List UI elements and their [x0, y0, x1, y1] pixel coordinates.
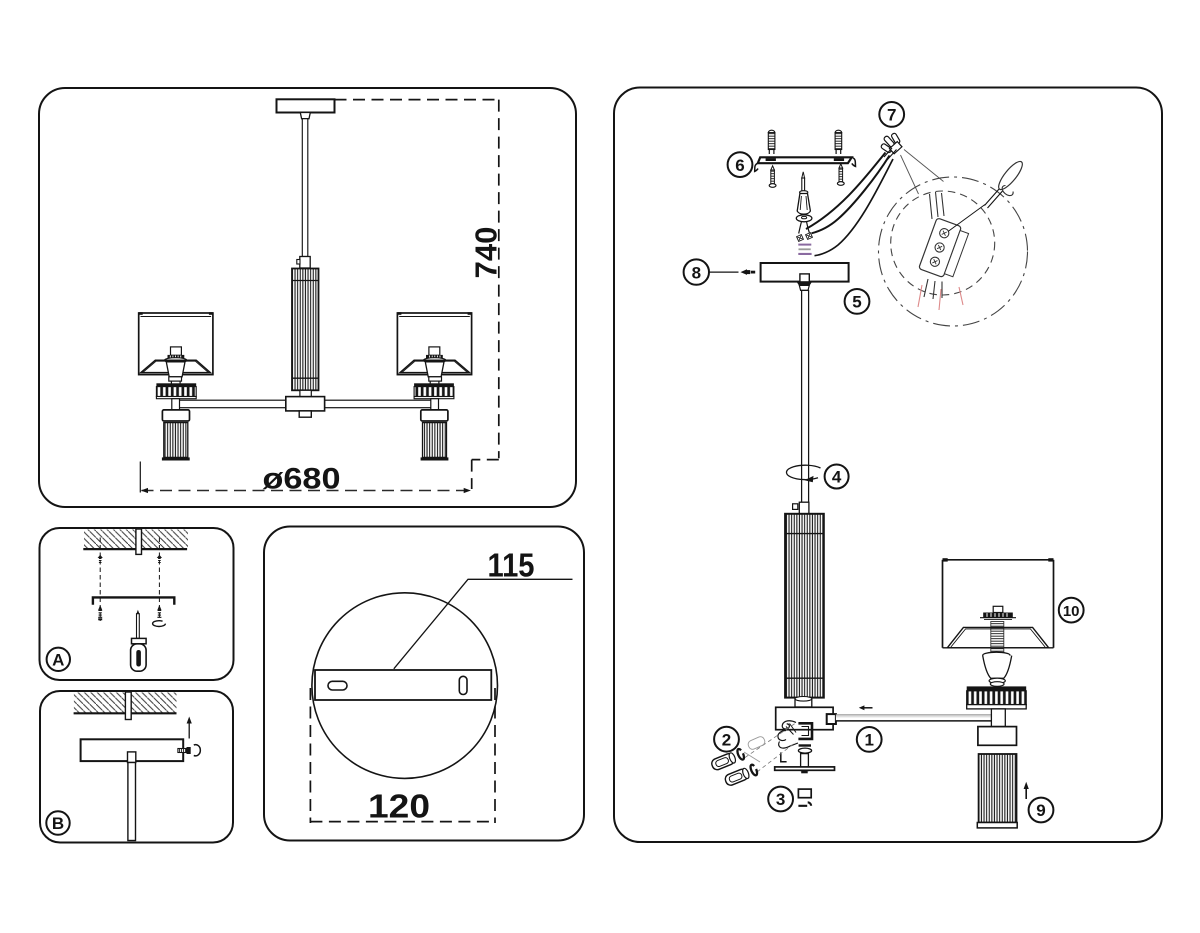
svg-text:5: 5 — [852, 293, 861, 312]
svg-text:8: 8 — [692, 263, 701, 282]
svg-text:3: 3 — [776, 790, 785, 809]
svg-text:A: A — [52, 650, 64, 669]
svg-text:120: 120 — [368, 788, 430, 825]
svg-text:4: 4 — [832, 468, 842, 487]
svg-text:740: 740 — [469, 227, 504, 279]
svg-text:ø680: ø680 — [263, 463, 341, 496]
svg-text:6: 6 — [735, 156, 744, 175]
svg-text:B: B — [52, 814, 64, 833]
svg-text:7: 7 — [887, 106, 896, 125]
svg-text:9: 9 — [1036, 801, 1045, 820]
svg-text:115: 115 — [488, 547, 535, 584]
svg-text:1: 1 — [864, 731, 873, 750]
svg-text:2: 2 — [722, 730, 731, 749]
svg-text:10: 10 — [1063, 603, 1080, 620]
